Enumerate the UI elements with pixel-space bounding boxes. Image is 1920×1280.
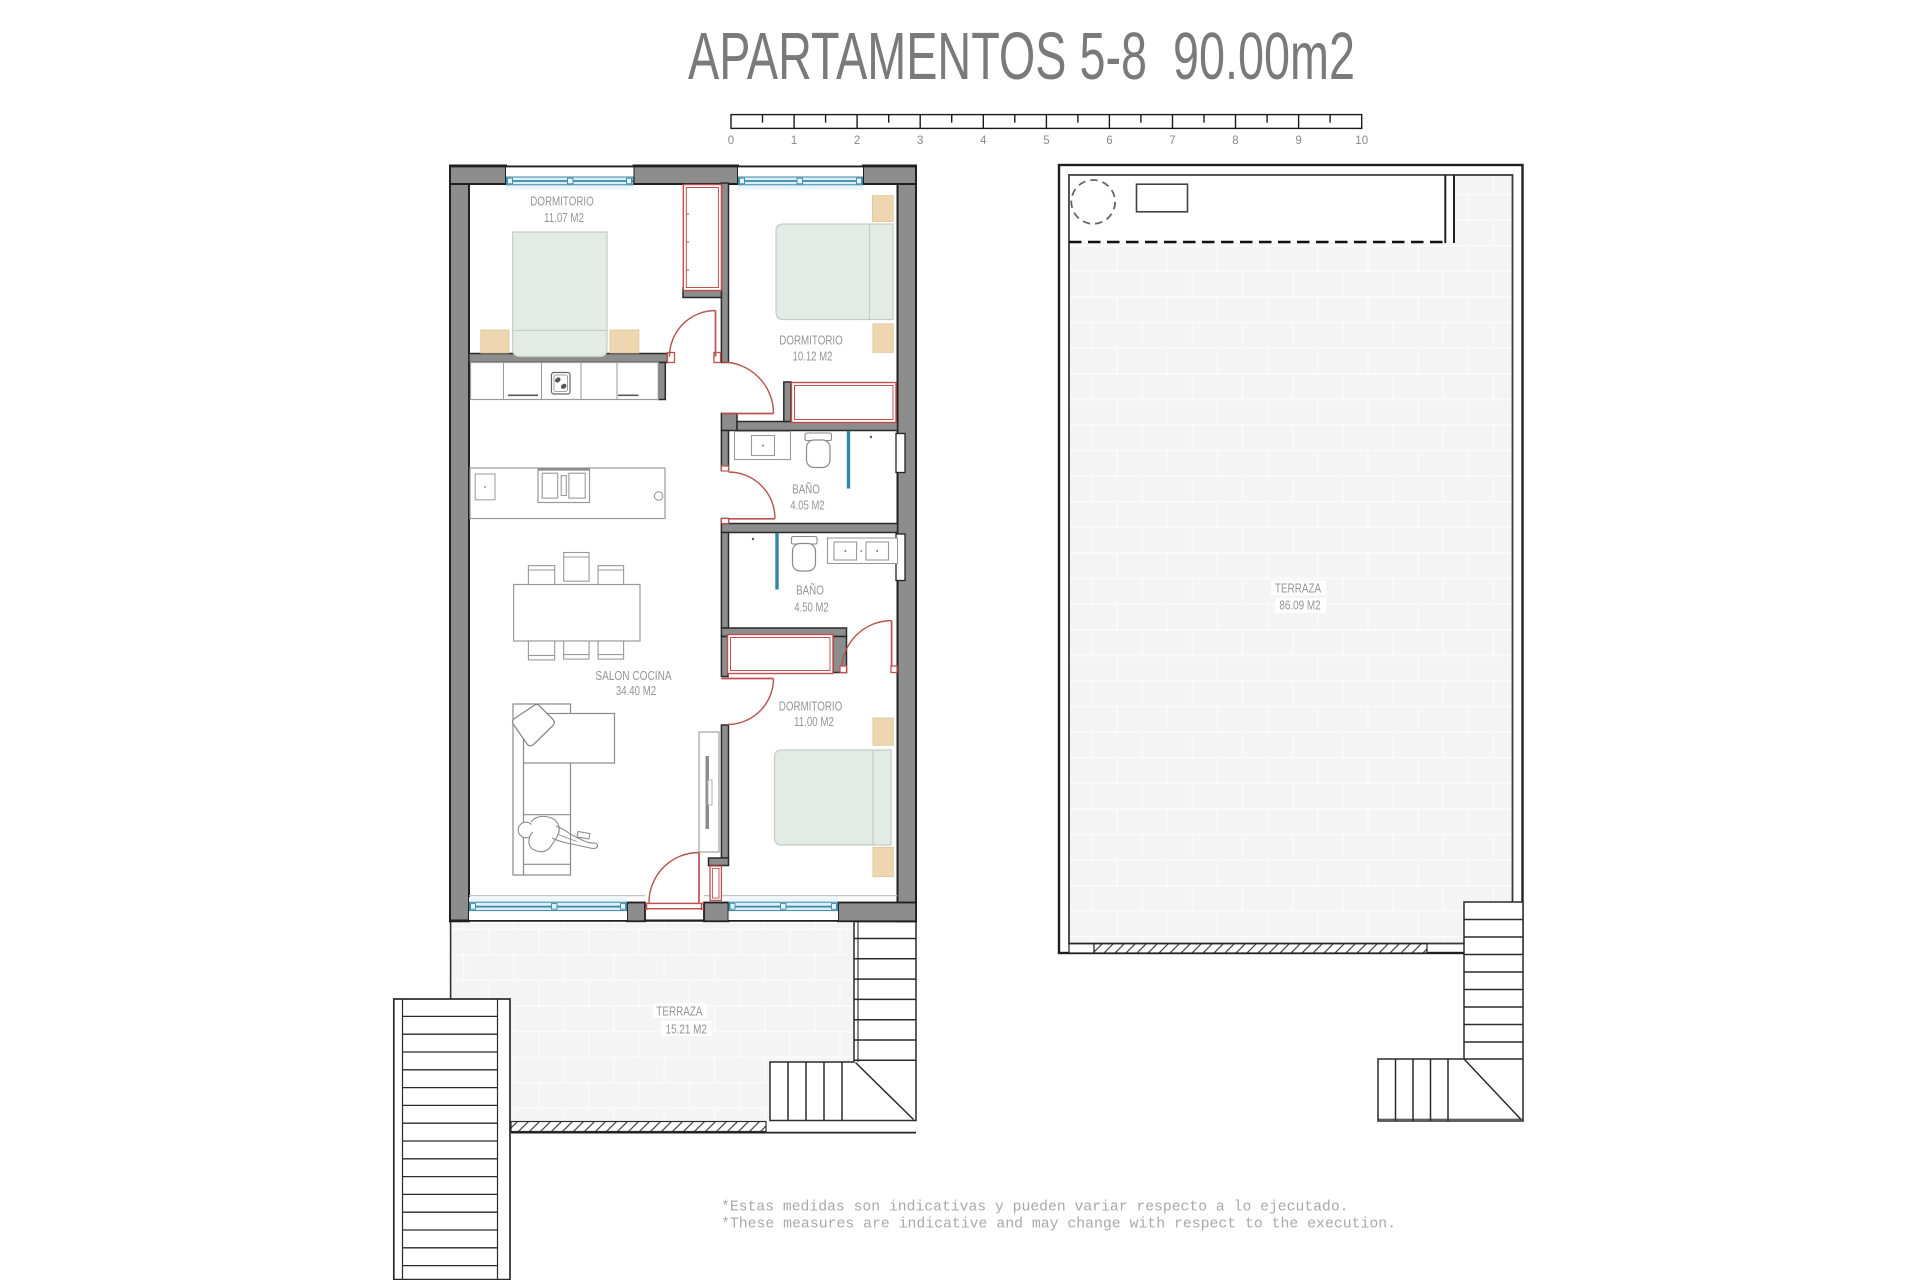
svg-text:5: 5 bbox=[1043, 135, 1049, 147]
svg-text:TERRAZA: TERRAZA bbox=[656, 1003, 702, 1018]
svg-text:7: 7 bbox=[1169, 135, 1175, 147]
svg-text:*Estas medidas son indicativas: *Estas medidas son indicativas y pueden … bbox=[721, 1200, 1349, 1216]
svg-text:BAÑO: BAÑO bbox=[792, 482, 820, 497]
svg-text:10: 10 bbox=[1355, 135, 1368, 147]
svg-text:4: 4 bbox=[980, 135, 987, 147]
svg-text:4.50 M2: 4.50 M2 bbox=[794, 600, 829, 615]
svg-text:3: 3 bbox=[917, 135, 923, 147]
svg-text:*These measures are indicative: *These measures are indicative and may c… bbox=[721, 1216, 1396, 1232]
svg-text:34.40 M2: 34.40 M2 bbox=[616, 683, 656, 698]
svg-text:APARTAMENTOS 5-8 90.00m2: APARTAMENTOS 5-8 90.00m2 bbox=[688, 19, 1355, 94]
svg-text:SALON COCINA: SALON COCINA bbox=[595, 668, 672, 683]
svg-text:TERRAZA: TERRAZA bbox=[1275, 581, 1321, 596]
svg-text:11.07 M2: 11.07 M2 bbox=[544, 210, 584, 225]
svg-text:DORMITORIO: DORMITORIO bbox=[779, 333, 843, 348]
svg-text:86.09 M2: 86.09 M2 bbox=[1279, 598, 1320, 613]
svg-text:9: 9 bbox=[1295, 135, 1301, 147]
svg-text:10.12 M2: 10.12 M2 bbox=[793, 349, 833, 364]
svg-text:11.00 M2: 11.00 M2 bbox=[794, 714, 834, 729]
svg-text:15.21 M2: 15.21 M2 bbox=[666, 1022, 707, 1037]
svg-text:DORMITORIO: DORMITORIO bbox=[530, 194, 594, 209]
svg-text:2: 2 bbox=[854, 135, 860, 147]
svg-text:DORMITORIO: DORMITORIO bbox=[779, 699, 843, 714]
svg-text:4.05 M2: 4.05 M2 bbox=[790, 498, 825, 513]
svg-text:8: 8 bbox=[1232, 135, 1238, 147]
svg-text:0: 0 bbox=[728, 135, 734, 147]
svg-text:BAÑO: BAÑO bbox=[796, 582, 824, 597]
svg-text:1: 1 bbox=[791, 135, 797, 147]
svg-text:6: 6 bbox=[1106, 135, 1112, 147]
